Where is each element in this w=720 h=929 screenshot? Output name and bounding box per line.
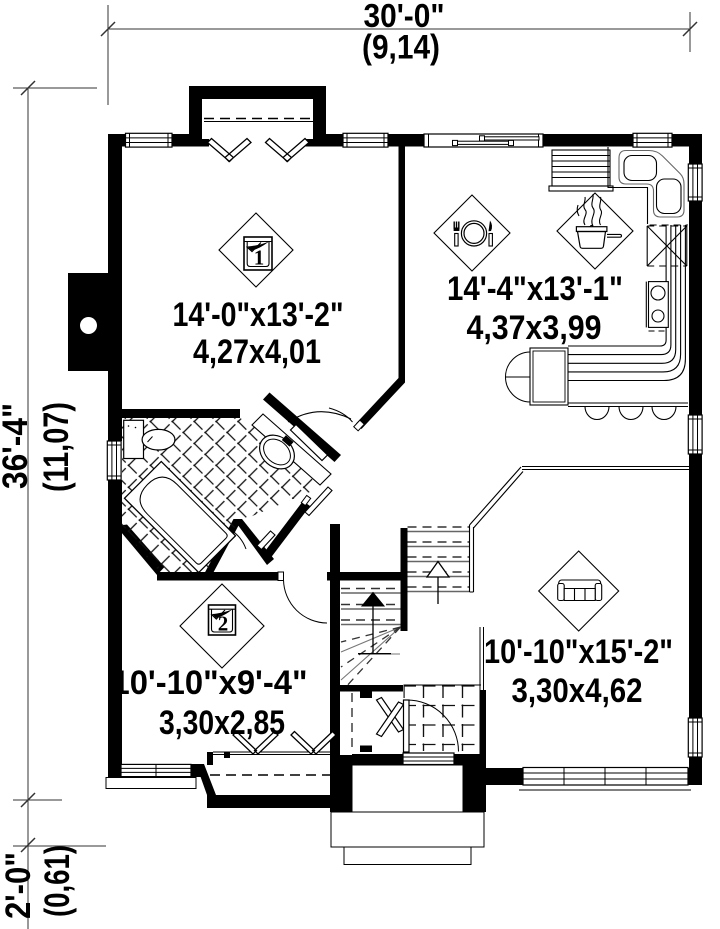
svg-text:2: 2 bbox=[218, 612, 229, 636]
svg-text:36'-4": 36'-4" bbox=[0, 403, 35, 489]
svg-text:1: 1 bbox=[254, 246, 265, 270]
svg-text:4,37x3,99: 4,37x3,99 bbox=[467, 309, 602, 347]
svg-text:10'-10"x15'-2": 10'-10"x15'-2" bbox=[484, 633, 673, 671]
svg-text:14'-4"x13'-1": 14'-4"x13'-1" bbox=[447, 270, 623, 308]
svg-text:10'-10"x9'-4": 10'-10"x9'-4" bbox=[112, 664, 308, 702]
svg-text:(0,61): (0,61) bbox=[38, 845, 77, 917]
svg-text:2'-0": 2'-0" bbox=[0, 852, 38, 919]
svg-text:(11,07): (11,07) bbox=[37, 402, 76, 492]
svg-text:14'-0"x13'-2": 14'-0"x13'-2" bbox=[173, 296, 344, 334]
svg-text:(9,14): (9,14) bbox=[362, 29, 440, 67]
svg-text:3,30x2,85: 3,30x2,85 bbox=[159, 704, 285, 742]
svg-text:4,27x4,01: 4,27x4,01 bbox=[193, 333, 321, 371]
svg-text:3,30x4,62: 3,30x4,62 bbox=[512, 672, 643, 710]
